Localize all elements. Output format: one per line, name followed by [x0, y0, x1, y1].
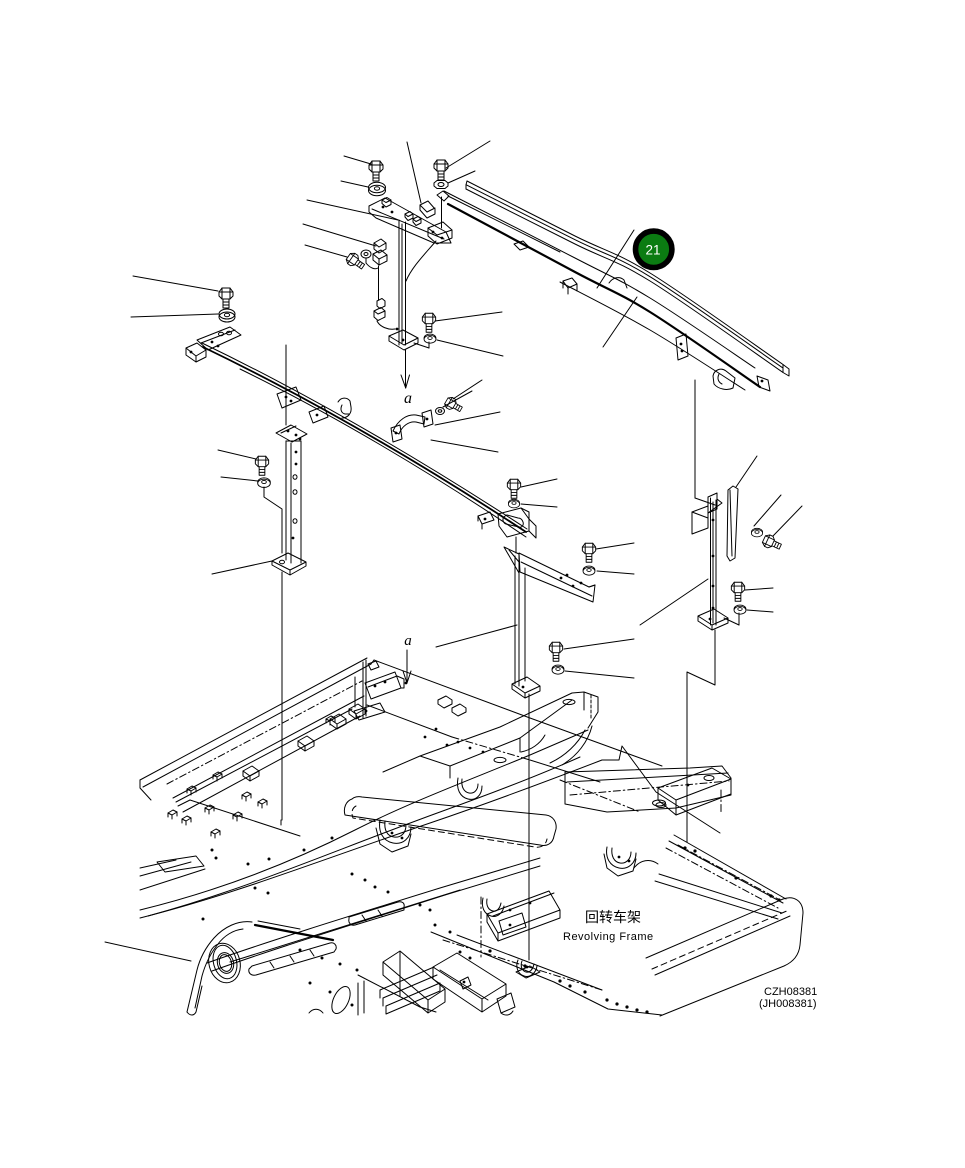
- svg-text:回转车架: 回转车架: [585, 909, 641, 925]
- svg-text:(JH008381): (JH008381): [759, 998, 816, 1010]
- svg-text:a: a: [404, 633, 412, 649]
- svg-text:CZH08381: CZH08381: [764, 986, 817, 998]
- svg-text:21: 21: [645, 243, 660, 258]
- svg-text:Revolving Frame: Revolving Frame: [563, 931, 654, 943]
- svg-text:a: a: [404, 390, 412, 407]
